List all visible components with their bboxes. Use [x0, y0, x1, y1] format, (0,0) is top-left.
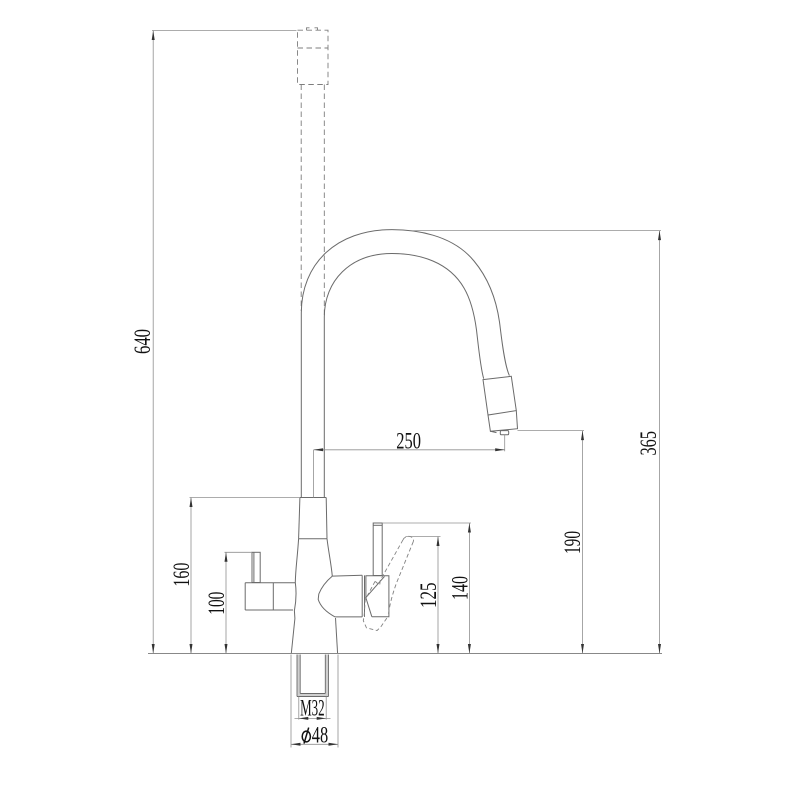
- svg-text:100: 100: [204, 592, 229, 615]
- svg-text:M32: M32: [300, 696, 325, 721]
- svg-text:140: 140: [448, 576, 473, 600]
- svg-text:640: 640: [130, 329, 155, 354]
- svg-text:250: 250: [396, 428, 421, 453]
- svg-text:190: 190: [560, 531, 585, 554]
- svg-text:160: 160: [169, 563, 194, 587]
- svg-text:48: 48: [312, 723, 328, 748]
- svg-text:125: 125: [416, 583, 441, 609]
- svg-text:365: 365: [636, 431, 661, 456]
